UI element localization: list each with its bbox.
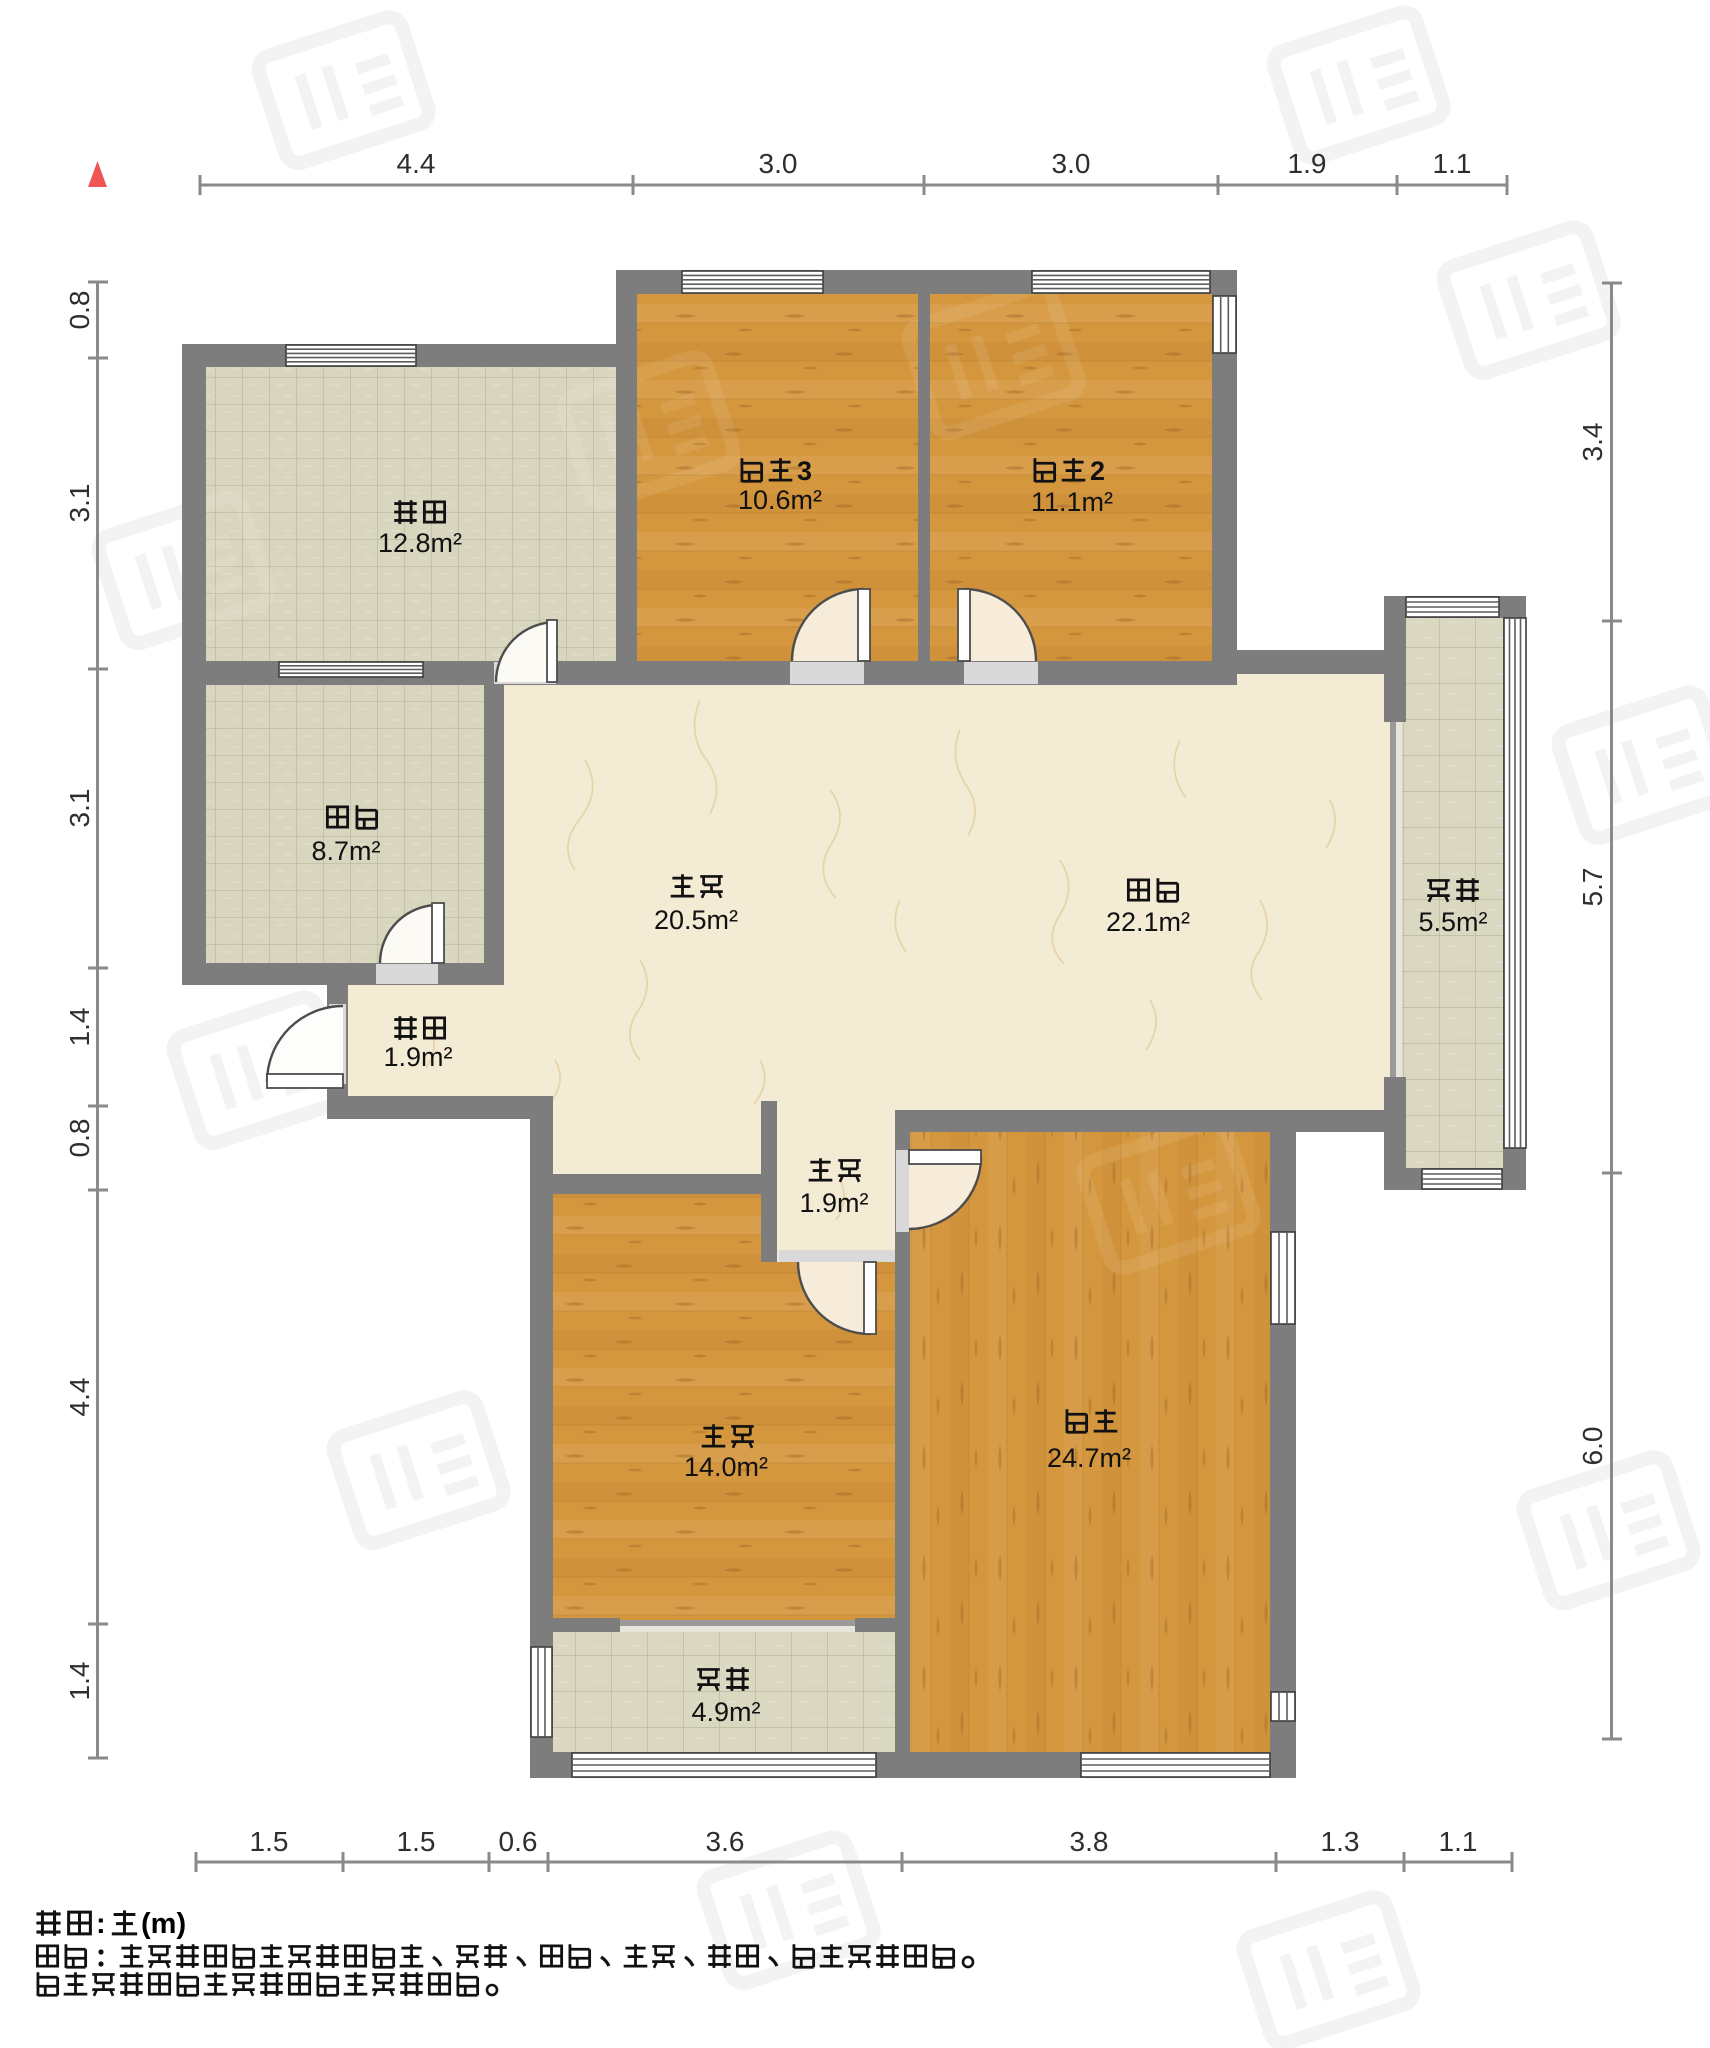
svg-text:3.0: 3.0 xyxy=(759,148,798,179)
svg-text:3.4: 3.4 xyxy=(1577,423,1608,462)
svg-text:1.1: 1.1 xyxy=(1439,1826,1478,1857)
svg-text:3.0: 3.0 xyxy=(1052,148,1091,179)
svg-text:1.5: 1.5 xyxy=(250,1826,289,1857)
svg-text:8.7m²: 8.7m² xyxy=(311,836,380,866)
svg-text:24.7m²: 24.7m² xyxy=(1047,1443,1131,1473)
svg-text:6.0: 6.0 xyxy=(1577,1427,1608,1466)
svg-text:4.4: 4.4 xyxy=(397,148,436,179)
svg-text:2: 2 xyxy=(1090,456,1105,486)
svg-text:3: 3 xyxy=(797,456,812,486)
svg-text:1.9: 1.9 xyxy=(1288,148,1327,179)
svg-text:4.9m²: 4.9m² xyxy=(691,1697,760,1727)
svg-text:20.5m²: 20.5m² xyxy=(654,905,738,935)
svg-text:1.4: 1.4 xyxy=(64,1008,95,1047)
svg-text:4.4: 4.4 xyxy=(64,1378,95,1417)
svg-text:1.5: 1.5 xyxy=(397,1826,436,1857)
svg-text:22.1m²: 22.1m² xyxy=(1106,907,1190,937)
svg-text:3.1: 3.1 xyxy=(64,789,95,828)
svg-text:5.7: 5.7 xyxy=(1577,868,1608,907)
svg-text:(m): (m) xyxy=(141,1908,186,1940)
svg-text:1.9m²: 1.9m² xyxy=(383,1042,452,1072)
svg-text:11.1m²: 11.1m² xyxy=(1031,487,1113,517)
svg-text:14.0m²: 14.0m² xyxy=(684,1452,768,1482)
svg-text:12.8m²: 12.8m² xyxy=(378,528,462,558)
svg-text:1.3: 1.3 xyxy=(1321,1826,1360,1857)
svg-text:0.8: 0.8 xyxy=(64,1119,95,1158)
svg-text:10.6m²: 10.6m² xyxy=(738,485,822,515)
svg-text:1.1: 1.1 xyxy=(1433,148,1472,179)
svg-text:0.6: 0.6 xyxy=(499,1826,538,1857)
svg-text:3.6: 3.6 xyxy=(706,1826,745,1857)
svg-text:1.4: 1.4 xyxy=(64,1662,95,1701)
svg-text:3.8: 3.8 xyxy=(1070,1826,1109,1857)
svg-text::: : xyxy=(96,1908,106,1940)
svg-text:5.5m²: 5.5m² xyxy=(1418,907,1487,937)
svg-text:0.8: 0.8 xyxy=(64,291,95,330)
svg-text:3.1: 3.1 xyxy=(64,484,95,523)
svg-text:1.9m²: 1.9m² xyxy=(799,1188,868,1218)
